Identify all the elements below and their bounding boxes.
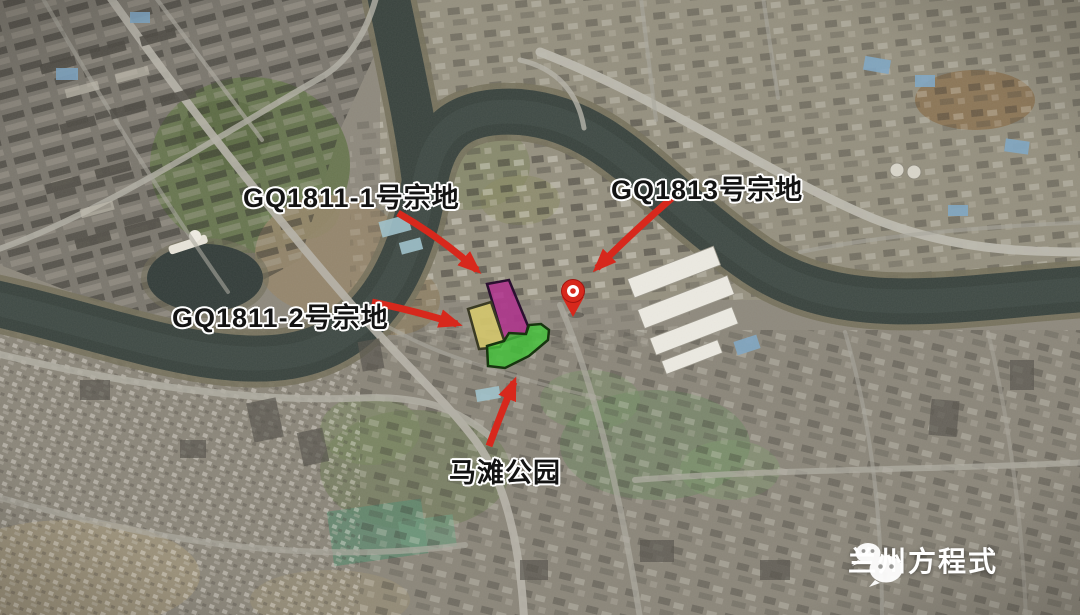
arrow-gq1813 (597, 197, 673, 268)
label-matan-park: 马滩公园 (449, 451, 561, 490)
satellite-map-figure: GQ1811-1号宗地 GQ1813号宗地 GQ1811-2号宗地 马滩公园 兰… (0, 0, 1080, 615)
label-gq1811-1: GQ1811-1号宗地 (243, 176, 460, 215)
label-gq1811-2: GQ1811-2号宗地 (172, 296, 389, 335)
watermark: 兰州方程式 (848, 540, 998, 580)
land-parcels (468, 280, 549, 368)
location-pin (562, 280, 585, 319)
arrow-gq1811-1 (398, 213, 477, 270)
annotation-overlay (0, 0, 1080, 615)
arrow-matan-park (489, 382, 514, 446)
wechat-icon (848, 540, 910, 590)
label-gq1813: GQ1813号宗地 (611, 168, 803, 207)
